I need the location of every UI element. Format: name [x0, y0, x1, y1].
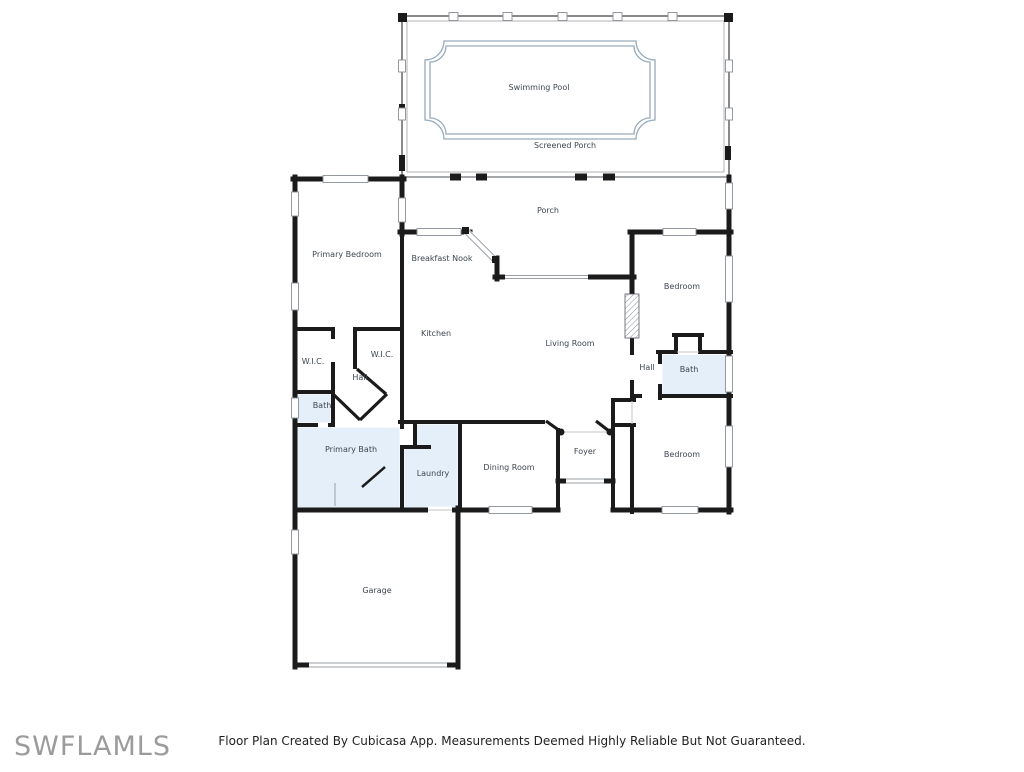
- fireplace: [625, 294, 639, 338]
- floor-plan-image: Swimming Pool Screened Porch Porch Prima…: [0, 0, 1024, 768]
- room-label-bath-right: Bath: [680, 365, 699, 374]
- bath-right-floor: [663, 355, 727, 394]
- room-label-swimming-pool: Swimming Pool: [509, 83, 570, 92]
- room-label-breakfast-nook: Breakfast Nook: [411, 254, 472, 263]
- room-label-primary-bath: Primary Bath: [325, 445, 377, 454]
- room-label-kitchen: Kitchen: [421, 329, 451, 338]
- room-label-wic-left: W.I.C.: [302, 357, 325, 366]
- floor-plan-canvas: Swimming Pool Screened Porch Porch Prima…: [0, 0, 1024, 768]
- room-label-dining-room: Dining Room: [483, 463, 534, 472]
- room-label-living-room: Living Room: [545, 339, 594, 348]
- room-label-laundry: Laundry: [417, 469, 450, 478]
- room-label-bedroom-upper: Bedroom: [664, 282, 700, 291]
- room-label-screened-porch: Screened Porch: [534, 141, 596, 150]
- room-label-hall-right: Hall: [639, 363, 654, 372]
- room-label-porch: Porch: [537, 206, 559, 215]
- room-labels: Swimming Pool Screened Porch Porch Prima…: [302, 83, 701, 595]
- room-label-garage: Garage: [362, 586, 391, 595]
- screened-porch-enclosure: [398, 13, 733, 181]
- room-label-wic-right: W.I.C.: [371, 350, 394, 359]
- room-label-bedroom-lower: Bedroom: [664, 450, 700, 459]
- room-label-foyer: Foyer: [574, 447, 597, 456]
- room-label-bath-left: Bath: [313, 401, 332, 410]
- disclaimer-text: Floor Plan Created By Cubicasa App. Meas…: [0, 734, 1024, 748]
- room-label-hall-left: Hall: [352, 373, 367, 382]
- room-label-primary-bedroom: Primary Bedroom: [312, 250, 382, 259]
